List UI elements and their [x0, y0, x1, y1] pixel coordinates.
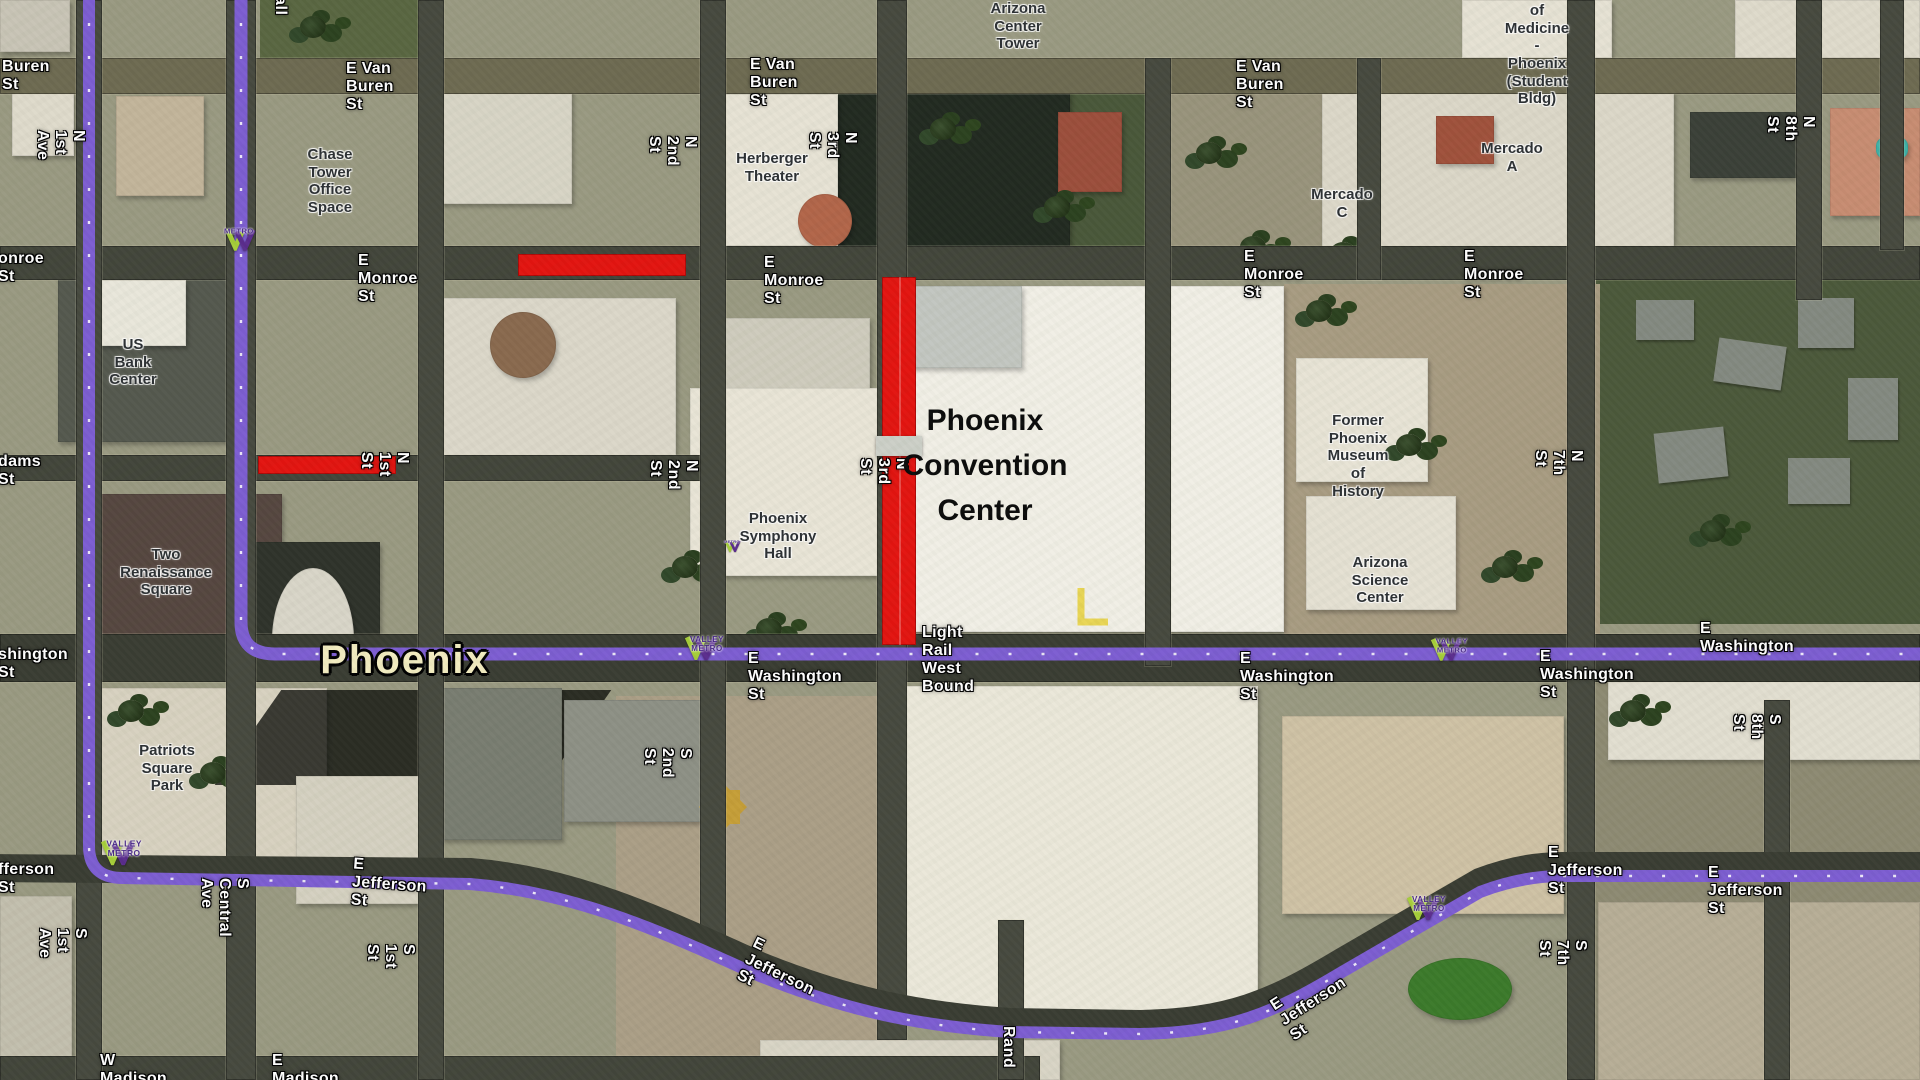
rail-ties: [241, 0, 1920, 654]
closure-e-monroe-st: [518, 254, 686, 276]
satellite-map[interactable]: Buren StE Van Buren StE Van Buren StE Va…: [0, 0, 1920, 1080]
pedestrian-bridge: [876, 436, 922, 456]
closure-n-3rd-st: [882, 277, 916, 645]
yellow-path-marker: [1081, 588, 1108, 622]
road-e-jefferson-st: [0, 866, 1920, 1024]
light-rail-jefferson-line: [89, 0, 1920, 1034]
light-rail-washington-line: [241, 0, 1920, 654]
closure-adams-st: [258, 456, 396, 474]
light-rail-lines: [0, 0, 1920, 1080]
